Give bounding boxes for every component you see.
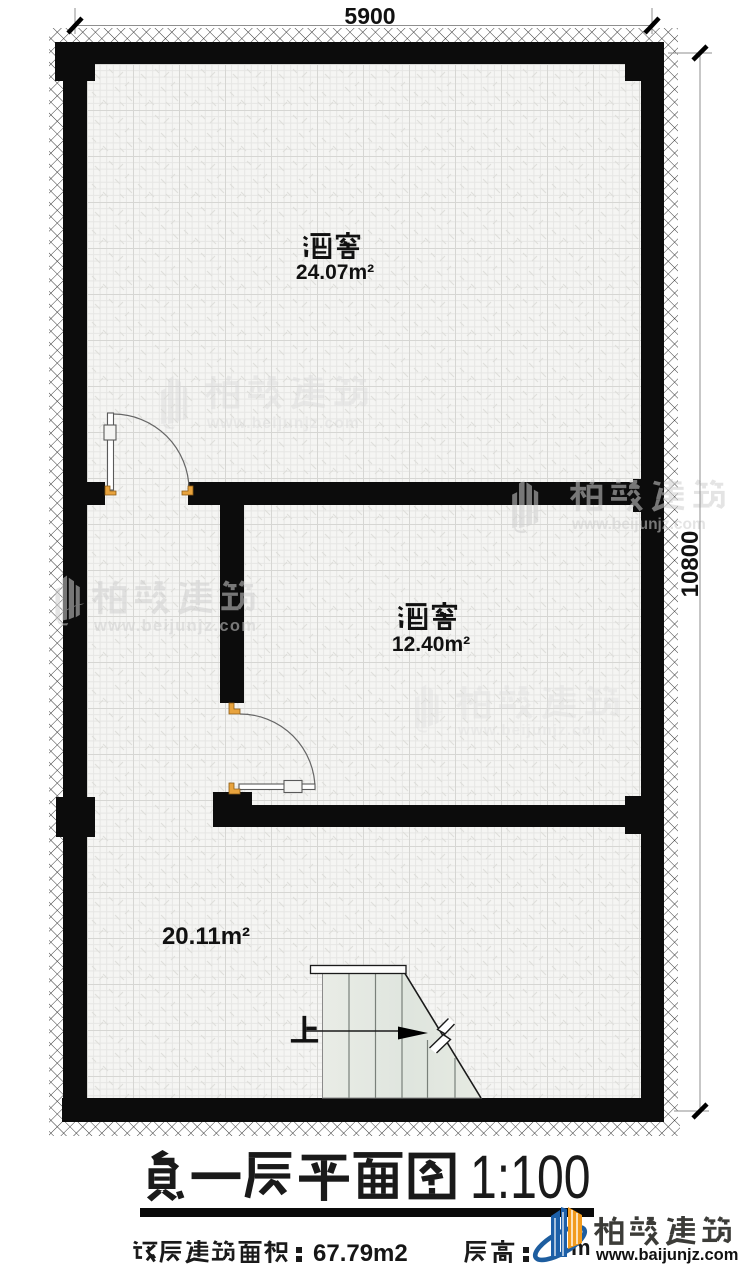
svg-text:20.11m²: 20.11m² (162, 923, 250, 950)
svg-text:12.40m²: 12.40m² (392, 633, 470, 656)
svg-text:www.baijunjz.com: www.baijunjz.com (595, 1246, 738, 1264)
svg-text:www.beijunjz.com: www.beijunjz.com (206, 415, 360, 432)
svg-text:1:100: 1:100 (470, 1143, 591, 1212)
svg-text:5900: 5900 (344, 3, 395, 29)
svg-text:www.beijunjz.com: www.beijunjz.com (571, 516, 706, 533)
svg-text:10800: 10800 (677, 531, 704, 598)
svg-text:www.beijunjz.com: www.beijunjz.com (457, 722, 607, 739)
svg-text:www.beijunjz.com: www.beijunjz.com (93, 617, 257, 635)
svg-text:24.07m²: 24.07m² (296, 261, 374, 284)
svg-text:67.79m2: 67.79m2 (313, 1240, 408, 1267)
